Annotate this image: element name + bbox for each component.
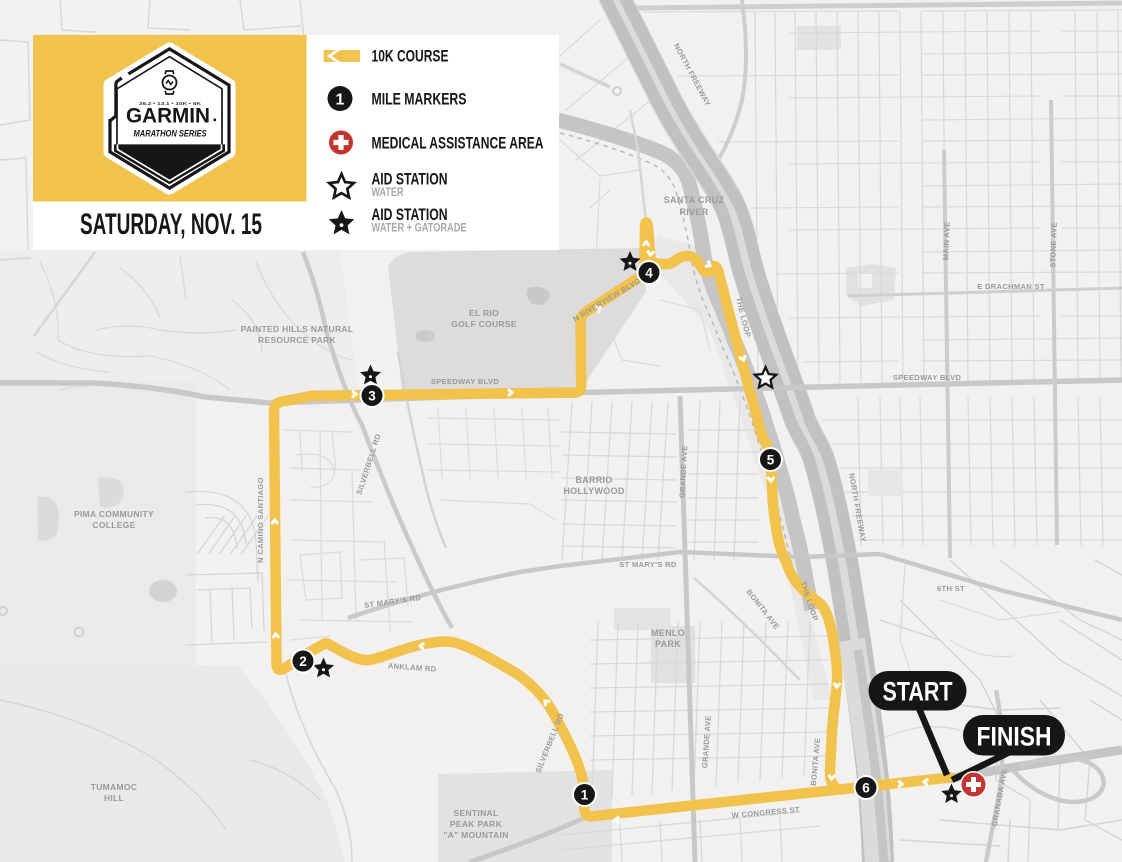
svg-text:MENLO: MENLO [651,628,685,638]
svg-text:MARATHON SERIES: MARATHON SERIES [134,129,208,140]
svg-text:START: START [883,677,953,707]
svg-text:10K COURSE: 10K COURSE [372,48,449,66]
svg-text:AID STATION: AID STATION [372,171,448,189]
svg-text:RIVER: RIVER [679,207,708,217]
svg-text:GOLF COURSE: GOLF COURSE [451,319,517,329]
svg-text:SENTINAL: SENTINAL [454,808,499,818]
svg-text:PARK: PARK [655,639,681,649]
svg-text:HOLLYWOOD: HOLLYWOOD [563,486,625,496]
svg-text:E DRACHMAN ST: E DRACHMAN ST [977,282,1045,291]
svg-text:BARRIO: BARRIO [575,475,612,485]
svg-text:3: 3 [368,388,376,403]
svg-text:1: 1 [581,787,589,802]
svg-text:SPEEDWAY BLVD: SPEEDWAY BLVD [431,377,500,386]
svg-text:MAIN AVE: MAIN AVE [941,221,951,260]
svg-text:COLLEGE: COLLEGE [92,520,135,530]
svg-text:SANTA CRUZ: SANTA CRUZ [664,195,725,205]
svg-text:STONE AVE: STONE AVE [1048,222,1059,268]
svg-text:WATER: WATER [372,187,405,199]
svg-text:PAINTED HILLS NATURAL: PAINTED HILLS NATURAL [241,324,354,334]
svg-text:SPEEDWAY BLVD: SPEEDWAY BLVD [893,373,962,382]
svg-text:6: 6 [862,780,870,795]
svg-text:"A" MOUNTAIN: "A" MOUNTAIN [443,830,508,840]
svg-text:6TH ST: 6TH ST [937,584,965,593]
svg-text:GARMIN: GARMIN [126,105,210,128]
svg-text:MEDICAL ASSISTANCE AREA: MEDICAL ASSISTANCE AREA [372,135,544,153]
svg-text:ST MARY'S RD: ST MARY'S RD [619,560,677,569]
svg-text:N CAMINO SANTIAGO: N CAMINO SANTIAGO [256,477,265,563]
svg-text:EL RIO: EL RIO [469,308,499,318]
svg-text:PIMA COMMUNITY: PIMA COMMUNITY [74,509,154,519]
svg-text:MILE MARKERS: MILE MARKERS [372,91,467,109]
svg-text:RESOURCE PARK: RESOURCE PARK [258,335,336,345]
svg-text:WATER + GATORADE: WATER + GATORADE [372,223,467,235]
svg-text:1: 1 [336,91,345,108]
svg-text:4: 4 [645,265,653,280]
svg-text:2: 2 [299,654,307,669]
svg-text:SATURDAY, NOV. 15: SATURDAY, NOV. 15 [80,208,262,241]
svg-text:HILL: HILL [104,793,124,803]
svg-text:FINISH: FINISH [977,722,1052,752]
svg-text:TUMAMOC: TUMAMOC [91,782,137,792]
svg-text:PEAK PARK: PEAK PARK [450,819,503,829]
svg-text:5: 5 [767,452,775,467]
svg-text:AID STATION: AID STATION [372,206,448,224]
